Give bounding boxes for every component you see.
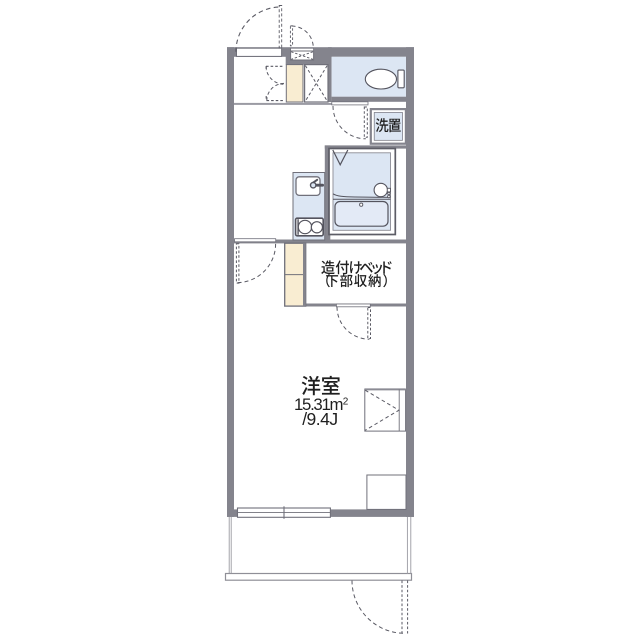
svg-text:/9.4J: /9.4J	[302, 409, 337, 429]
